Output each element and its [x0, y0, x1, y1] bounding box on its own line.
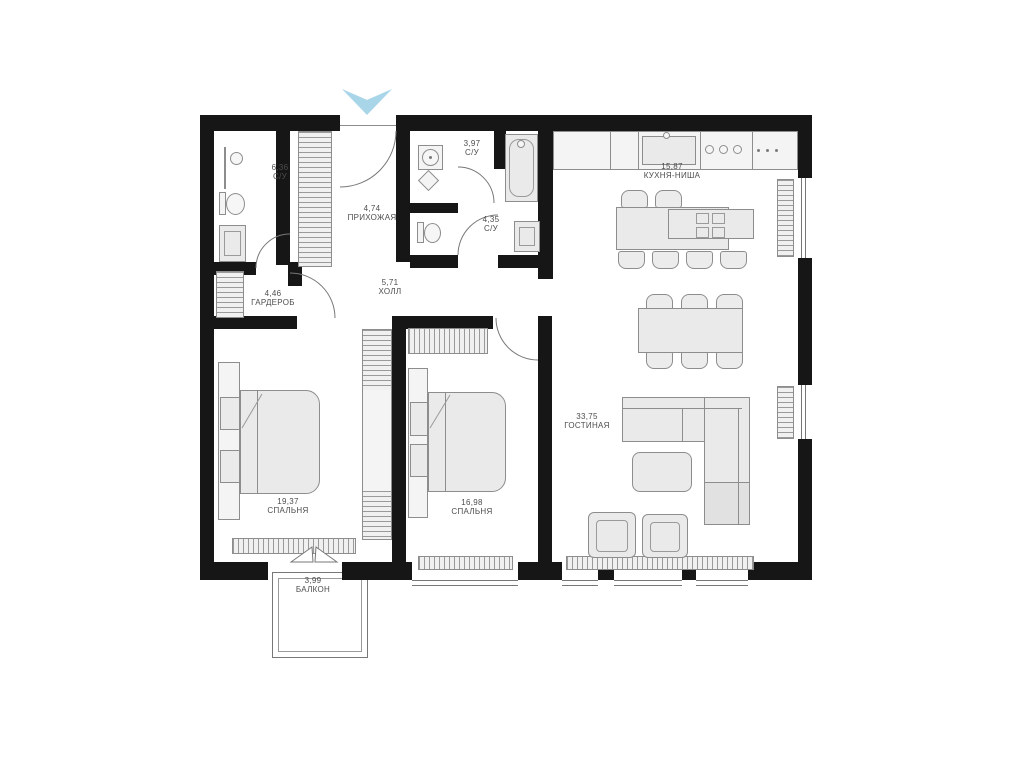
headboard-panel: [218, 362, 240, 520]
coffee-table: [632, 452, 692, 492]
window: [614, 580, 682, 586]
wall-segment: [798, 115, 812, 178]
nightstand: [410, 444, 428, 477]
radiator: [566, 556, 754, 570]
toilet-icon: [424, 223, 441, 243]
wall-segment: [538, 316, 552, 564]
dining-table: [638, 308, 743, 353]
room-label-bedroom-2: 16,98 СПАЛЬНЯ: [427, 498, 517, 516]
window: [562, 580, 598, 586]
burner-icon: [696, 213, 709, 224]
room-name: КУХНЯ-НИША: [612, 171, 732, 180]
window: [412, 580, 518, 586]
room-label-entry-hall: 4,74 ПРИХОЖАЯ: [327, 204, 417, 222]
wall-segment: [396, 115, 812, 131]
room-name: ГОСТИНАЯ: [542, 421, 632, 430]
wall-segment: [410, 203, 458, 213]
room-area: 33,75: [542, 412, 632, 421]
wall-segment: [798, 258, 812, 385]
room-label-kitchen: 15,87 КУХНЯ-НИША: [612, 162, 732, 180]
chair: [720, 251, 747, 269]
chair: [618, 251, 645, 269]
burner-icon: [719, 145, 728, 154]
wall-segment: [410, 255, 458, 268]
room-name: БАЛКОН: [276, 585, 350, 594]
sink-icon: [418, 170, 439, 191]
bed: [240, 390, 320, 494]
bedroom2-wardrobe: [408, 328, 488, 354]
radiator: [232, 538, 356, 554]
burner-icon: [733, 145, 742, 154]
room-area: 3,97: [442, 139, 502, 148]
toilet-tank: [417, 222, 424, 243]
wall-segment: [798, 439, 812, 564]
room-name: СПАЛЬНЯ: [427, 507, 517, 516]
wall-segment: [518, 562, 562, 580]
headboard-panel: [408, 368, 428, 518]
chair: [686, 251, 713, 269]
floor-plan: 6,36 С/У 4,74 ПРИХОЖАЯ 3,97 С/У 4,35 С/У…: [0, 0, 1024, 768]
room-area: 4,35: [461, 215, 521, 224]
room-area: 6,36: [250, 163, 310, 172]
nightstand: [410, 402, 428, 436]
wall-segment: [396, 131, 410, 262]
bathroom-vanity: [219, 225, 246, 262]
armchair: [588, 512, 636, 558]
kitchen-faucet-icon: [663, 132, 670, 139]
room-name: ПРИХОЖАЯ: [327, 213, 417, 222]
wall-segment: [538, 131, 553, 279]
room-label-hall: 5,71 ХОЛЛ: [350, 278, 430, 296]
window: [801, 178, 806, 258]
wall-segment: [748, 562, 812, 580]
nightstand: [220, 397, 240, 430]
chair: [655, 190, 682, 208]
wall-segment: [342, 562, 412, 580]
room-name: СПАЛЬНЯ: [243, 506, 333, 515]
chair: [621, 190, 648, 208]
kitchen-sink-icon: [642, 136, 696, 165]
room-name: ХОЛЛ: [350, 287, 430, 296]
radiator: [418, 556, 513, 570]
chair: [646, 351, 673, 369]
room-label-bedroom-1: 19,37 СПАЛЬНЯ: [243, 497, 333, 515]
chair: [681, 351, 708, 369]
room-name: С/У: [461, 224, 521, 233]
room-name: С/У: [442, 148, 502, 157]
room-area: 5,71: [350, 278, 430, 287]
burner-icon: [696, 227, 709, 238]
radiator: [777, 386, 794, 439]
radiator: [777, 179, 794, 257]
burner-icon: [705, 145, 714, 154]
cooktop: [668, 209, 754, 239]
room-area: 16,98: [427, 498, 517, 507]
room-area: 15,87: [612, 162, 732, 171]
room-label-wardrobe: 4,46 ГАРДЕРОБ: [228, 289, 318, 307]
room-label-bathroom-2: 3,97 С/У: [442, 139, 502, 157]
shower-head-icon: [230, 152, 243, 165]
wall-segment: [392, 316, 406, 564]
wall-segment: [498, 255, 538, 268]
room-name: ГАРДЕРОБ: [228, 298, 318, 307]
room-name: С/У: [250, 172, 310, 181]
room-label-bathroom-main: 6,36 С/У: [250, 163, 310, 181]
bed: [428, 392, 506, 492]
shower-icon: [224, 147, 226, 189]
room-area: 4,74: [327, 204, 417, 213]
toilet-icon: [226, 193, 245, 215]
bathtub-faucet-icon: [517, 140, 525, 148]
room-label-living-room: 33,75 ГОСТИНАЯ: [542, 412, 632, 430]
washing-machine-dot: [429, 156, 432, 159]
burner-icon: [712, 213, 725, 224]
window: [801, 385, 806, 439]
entrance-threshold: [340, 125, 396, 126]
wall-segment: [200, 115, 214, 564]
wall-segment: [200, 562, 268, 580]
room-area: 19,37: [243, 497, 333, 506]
toilet-tank: [219, 192, 226, 215]
hallway-closet: [298, 131, 332, 267]
wall-segment: [276, 131, 290, 265]
room-area: 4,46: [228, 289, 318, 298]
burner-icon: [712, 227, 725, 238]
armchair: [642, 514, 688, 558]
sofa-chaise: [704, 482, 750, 525]
room-label-bathroom-3: 4,35 С/У: [461, 215, 521, 233]
window: [696, 580, 748, 586]
room-label-balcony: 3,99 БАЛКОН: [276, 576, 350, 594]
chair: [716, 351, 743, 369]
wall-segment: [200, 115, 340, 131]
room-area: 3,99: [276, 576, 350, 585]
nightstand: [220, 450, 240, 483]
chair: [652, 251, 679, 269]
entrance-marker-icon: [342, 89, 392, 115]
bedroom1-wardrobe: [362, 329, 392, 540]
